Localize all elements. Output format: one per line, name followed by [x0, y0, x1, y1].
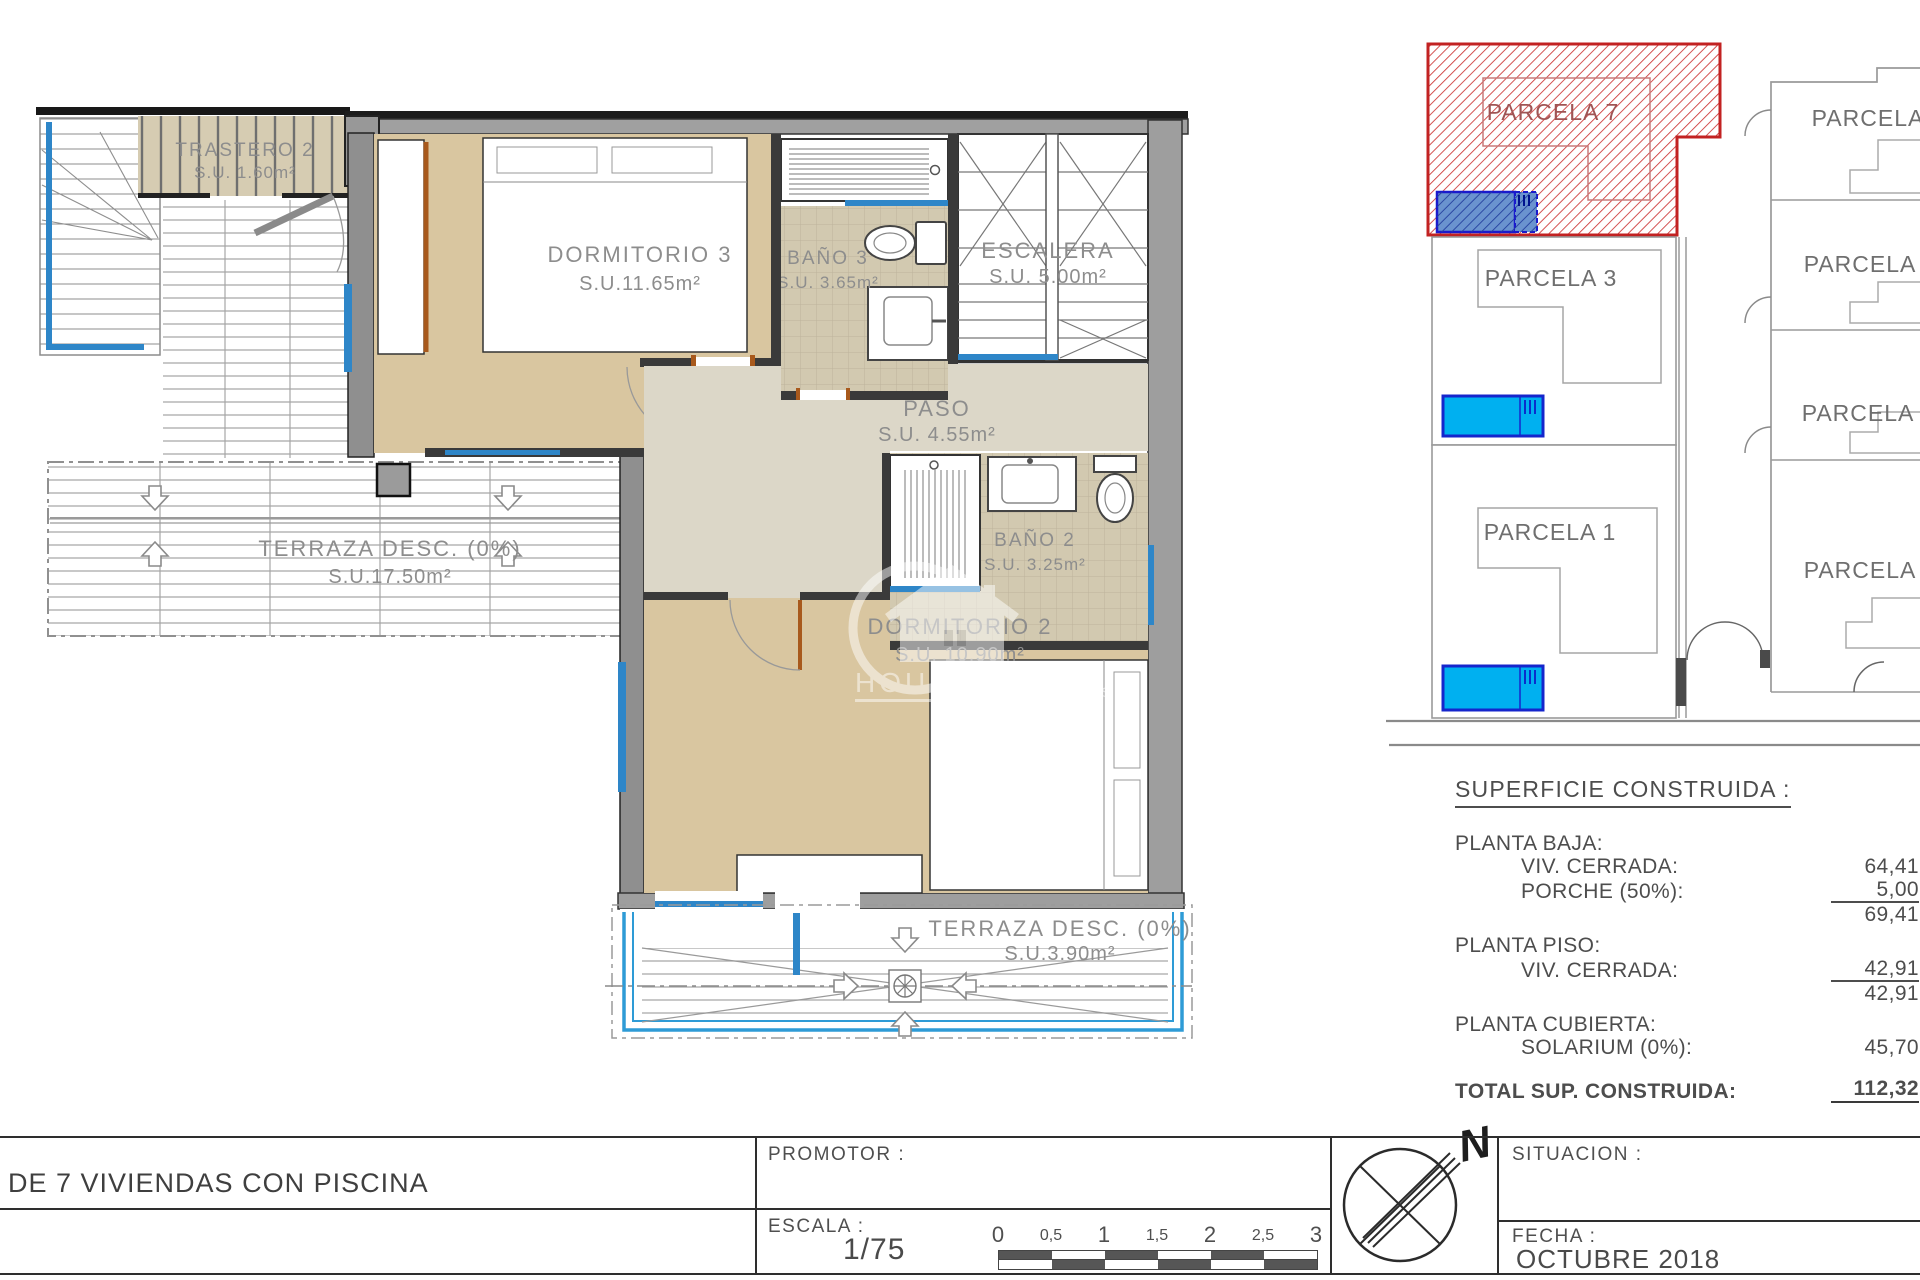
bano2-label: BAÑO 2: [994, 529, 1076, 551]
scale-tick: 0: [992, 1222, 1004, 1248]
divider: [755, 1208, 1330, 1210]
bano3-area: S.U. 3.65m²: [777, 273, 879, 292]
bano3-label: BAÑO 3: [787, 247, 869, 269]
parcela3-label: PARCELA 3: [1485, 265, 1618, 291]
promotor-label: PROMOTOR :: [768, 1144, 905, 1166]
terraza-area: S.U.17.50m²: [328, 566, 451, 588]
subtotal-row: 42,91: [1455, 982, 1919, 1005]
scale-tick: 2,5: [1252, 1227, 1274, 1245]
parcel-column-right: PARCELA PARCELA 5 PARCELA 4 PARCELA 2: [1745, 68, 1920, 692]
table-row: SOLARIUM (0%): 45,70: [1455, 1036, 1919, 1059]
terraza-grande: TERRAZA DESC. (0%) S.U.17.50m²: [48, 462, 625, 636]
parcel-7: PARCELA 7: [1428, 44, 1720, 235]
scale-tick: 0,5: [1040, 1227, 1062, 1245]
dormitorio3-area: S.U.11.65m²: [579, 273, 701, 295]
stair-rail-blue: [46, 122, 52, 350]
terraza-inferior: TERRAZA DESC. (0%) S.U.3.90m²: [605, 905, 1192, 1038]
subtotal-row: 69,41: [1455, 903, 1919, 926]
parcela7-label: PARCELA 7: [1487, 99, 1620, 125]
window-marker: [344, 284, 352, 372]
parcela2-label: PARCELA 2: [1804, 557, 1920, 583]
bench: [737, 855, 922, 893]
pool: [1443, 396, 1543, 436]
pillow: [497, 147, 597, 173]
table-row: PORCHE (50%): 5,00: [1455, 878, 1919, 903]
room-bano3: BAÑO 3 S.U. 3.65m²: [771, 134, 948, 402]
escala-value: 1/75: [843, 1233, 905, 1267]
toilet-symbol: [1094, 456, 1136, 472]
window-marker: [655, 901, 763, 907]
divider: [0, 1208, 755, 1210]
situacion-label: SITUACION :: [1512, 1144, 1643, 1166]
dormitorio3-label: DORMITORIO 3: [548, 242, 733, 267]
title-block: DE 7 VIVIENDAS CON PISCINA PROMOTOR : ES…: [0, 1136, 1920, 1275]
parcela6-label: PARCELA: [1812, 105, 1920, 131]
terraza2-label: TERRAZA DESC. (0%): [928, 916, 1191, 941]
scale-tick: 1,5: [1146, 1227, 1168, 1245]
paso-label: PASO: [903, 396, 971, 421]
window-marker: [445, 450, 560, 455]
surface-table-title: SUPERFICIE CONSTRUIDA :: [1455, 776, 1791, 808]
bano2-area: S.U. 3.25m²: [984, 555, 1086, 574]
fecha-value: OCTUBRE 2018: [1516, 1244, 1720, 1275]
divider: [755, 1138, 757, 1273]
wardrobe: [378, 140, 424, 354]
pillar: [377, 464, 410, 496]
scale-tick: 3: [1310, 1222, 1322, 1248]
scale-tick: 1: [1098, 1222, 1110, 1248]
project-title: DE 7 VIVIENDAS CON PISCINA: [8, 1168, 429, 1199]
siteplan: PARCELA 7 PARCELA 3 PARCELA 1: [1386, 44, 1920, 745]
divider: [1330, 1138, 1332, 1273]
pillow: [612, 147, 712, 173]
parcel-3: PARCELA 3: [1432, 237, 1676, 445]
door-leaf: [793, 913, 800, 975]
watermark-text: HOUSE IN: [855, 667, 1022, 698]
scale-tick: 2: [1204, 1222, 1216, 1248]
window-marker: [618, 662, 626, 792]
watermark-subtext: REAL ES: [1040, 684, 1113, 700]
divider: [1497, 1138, 1499, 1273]
divider: [1497, 1220, 1920, 1222]
shower-screen: [845, 200, 948, 206]
pillow: [1114, 672, 1140, 768]
pillow: [1114, 780, 1140, 876]
table-row: VIV. CERRADA: 64,41: [1455, 855, 1919, 878]
pool: [1443, 666, 1543, 710]
parcela1-label: PARCELA 1: [1484, 519, 1617, 545]
escalera-label: ESCALERA: [981, 238, 1114, 263]
room-escalera: ESCALERA S.U. 5.00m²: [948, 134, 1148, 364]
trastero2-label: TRASTERO 2: [175, 140, 314, 161]
drawing-sheet: TRASTERO 2 S.U. 1.60m²: [0, 0, 1920, 1280]
parcel-1: PARCELA 1: [1432, 445, 1676, 718]
window-marker: [958, 354, 1058, 360]
section-heading: PLANTA PISO:: [1455, 934, 1919, 957]
total-row: TOTAL SUP. CONSTRUIDA: 112,32: [1455, 1077, 1919, 1103]
section-heading: PLANTA BAJA:: [1455, 832, 1919, 855]
terraza2-area: S.U.3.90m²: [1004, 943, 1115, 965]
floorplan: TRASTERO 2 S.U. 1.60m²: [36, 107, 1192, 1038]
table-row: VIV. CERRADA: 42,91: [1455, 957, 1919, 982]
parcela4-label: PARCELA 4: [1802, 400, 1920, 426]
drain-rosette: [889, 970, 921, 1002]
paso-area: S.U. 4.55m²: [878, 424, 996, 446]
section-heading: PLANTA CUBIERTA:: [1455, 1013, 1919, 1036]
surface-table: SUPERFICIE CONSTRUIDA : PLANTA BAJA: VIV…: [1455, 776, 1919, 1103]
trastero2-area: S.U. 1.60m²: [194, 163, 296, 182]
parcela5-label: PARCELA 5: [1804, 251, 1920, 277]
terraza-label: TERRAZA DESC. (0%): [258, 536, 521, 561]
escalera-area: S.U. 5.00m²: [989, 266, 1107, 288]
toilet-symbol: [916, 222, 946, 264]
deck-upper: [163, 196, 348, 458]
